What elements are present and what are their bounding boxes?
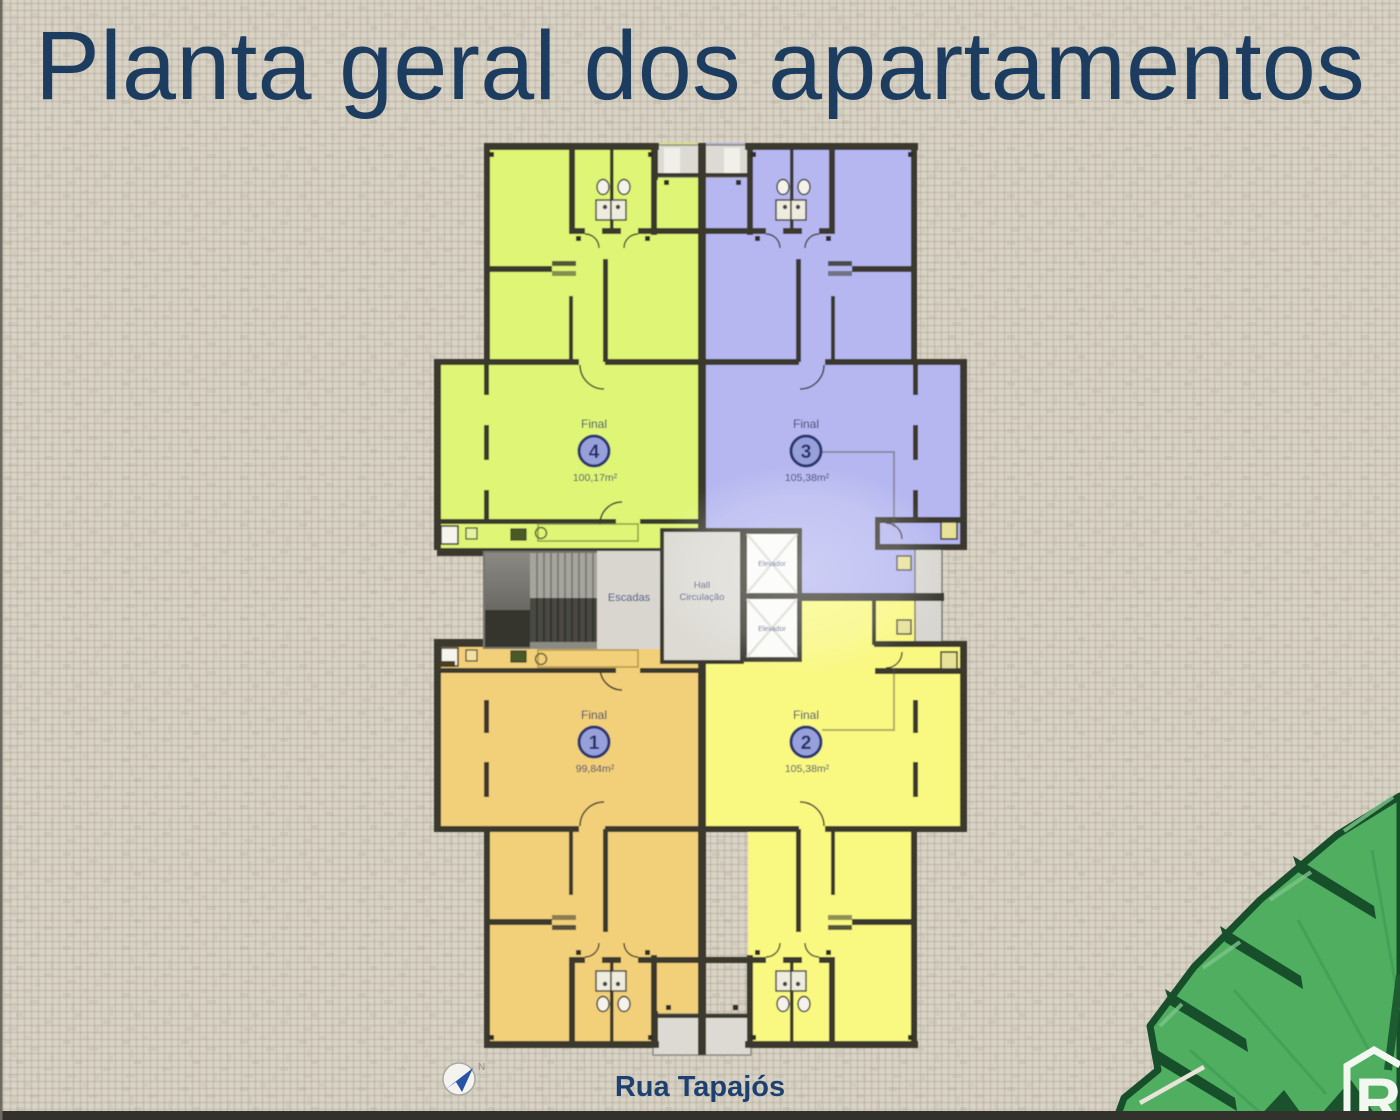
svg-text:100,17m²: 100,17m²	[573, 472, 618, 484]
svg-text:105,38m²: 105,38m²	[785, 763, 830, 775]
svg-text:Final: Final	[793, 708, 819, 722]
svg-text:Rua Tapajós: Rua Tapajós	[615, 1071, 785, 1103]
svg-text:105,38m²: 105,38m²	[785, 472, 830, 484]
svg-text:Final: Final	[793, 417, 819, 431]
svg-text:Planta geral dos apartamentos: Planta geral dos apartamentos	[35, 11, 1365, 120]
svg-text:99,84m²: 99,84m²	[576, 763, 615, 775]
svg-text:4: 4	[589, 442, 600, 463]
svg-text:Final: Final	[581, 417, 607, 431]
svg-text:2: 2	[801, 733, 812, 754]
svg-text:Final: Final	[581, 708, 607, 722]
svg-text:3: 3	[801, 442, 812, 463]
svg-text:1: 1	[589, 733, 600, 754]
svg-text:N: N	[478, 1062, 485, 1073]
svg-text:Escadas: Escadas	[608, 592, 651, 604]
